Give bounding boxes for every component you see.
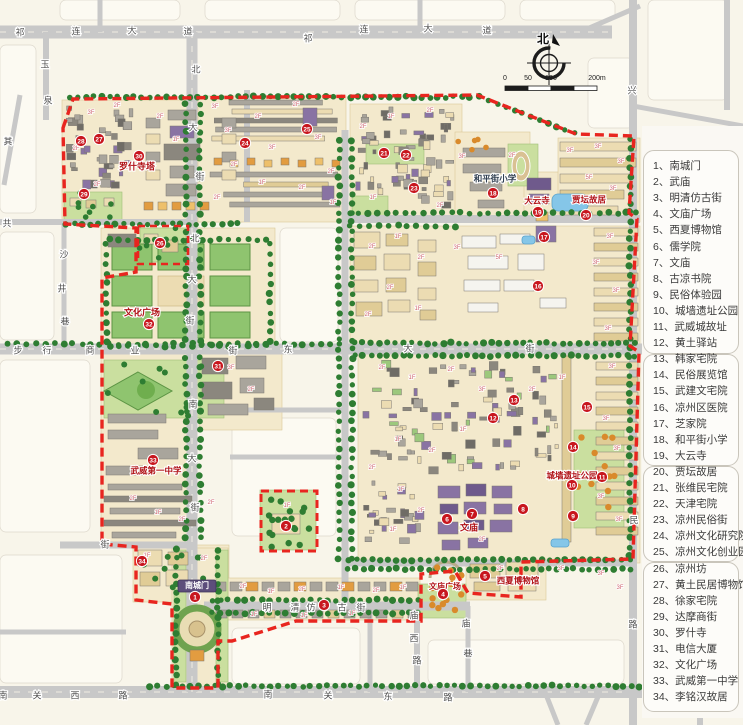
svg-text:大: 大 [188, 121, 197, 132]
svg-text:仿: 仿 [306, 601, 315, 612]
svg-text:街: 街 [525, 342, 534, 353]
svg-text:西夏博物馆: 西夏博物馆 [497, 575, 540, 585]
svg-text:5F: 5F [495, 255, 502, 261]
svg-text:2F: 2F [378, 365, 385, 371]
svg-text:3F: 3F [594, 144, 601, 150]
svg-text:庙: 庙 [461, 617, 470, 628]
legend-item-5: 5、西夏博物馆 [653, 224, 722, 237]
legend-item-6: 6、儒学院 [653, 241, 701, 254]
svg-text:3F: 3F [478, 387, 485, 393]
svg-text:2F: 2F [478, 537, 485, 543]
legend-item-29: 29、达摩商街 [653, 611, 717, 624]
legend-item-24: 24、凉州文化研究院 [653, 530, 743, 543]
marker-7: 7 [466, 508, 477, 519]
svg-text:5F: 5F [585, 175, 592, 181]
marker-11: 11 [596, 471, 607, 482]
svg-text:1F: 1F [387, 114, 394, 120]
legend-item-4: 4、文庙广场 [653, 208, 711, 221]
svg-text:16: 16 [534, 283, 542, 290]
svg-text:1F: 1F [397, 487, 404, 493]
svg-text:2F: 2F [386, 285, 393, 291]
street-west-edge-street: 其 [3, 136, 12, 146]
svg-text:业: 业 [130, 345, 139, 355]
svg-text:1F: 1F [172, 137, 179, 143]
svg-text:关: 关 [32, 689, 41, 700]
marker-14: 14 [567, 441, 578, 452]
svg-text:3F: 3F [597, 571, 604, 577]
svg-text:3F: 3F [608, 364, 615, 370]
svg-text:2F: 2F [327, 169, 334, 175]
legend-item-27: 27、黄土民居博物馆 [653, 579, 743, 592]
legend-item-26: 26、凉州坊 [653, 563, 707, 576]
svg-text:街: 街 [190, 501, 199, 512]
svg-text:2F: 2F [426, 108, 433, 114]
svg-text:8: 8 [521, 506, 525, 513]
svg-text:1F: 1F [558, 375, 565, 381]
svg-text:西: 西 [409, 633, 418, 643]
legend-item-17: 17、芝家院 [653, 418, 707, 431]
svg-text:文化广场: 文化广场 [123, 306, 160, 317]
svg-text:大: 大 [403, 342, 412, 353]
svg-text:大: 大 [187, 452, 196, 463]
marker-16: 16 [532, 280, 543, 291]
legend-item-22: 22、天津宅院 [653, 498, 717, 511]
svg-text:10: 10 [568, 482, 576, 489]
svg-text:民: 民 [629, 515, 638, 525]
marker-25: 25 [301, 123, 312, 134]
svg-text:其: 其 [3, 136, 12, 146]
legend-item-19: 19、大云寺 [653, 450, 707, 463]
svg-text:南: 南 [0, 689, 8, 700]
svg-text:南: 南 [263, 688, 272, 699]
svg-text:2F: 2F [207, 500, 214, 506]
svg-text:2F: 2F [239, 584, 246, 590]
svg-text:兴: 兴 [627, 85, 636, 95]
svg-text:2F: 2F [254, 114, 261, 120]
marker-26: 26 [154, 237, 165, 248]
marker-22: 22 [400, 149, 411, 160]
svg-text:7: 7 [470, 511, 474, 518]
legend-item-12: 12、黄土驿站 [653, 337, 717, 350]
svg-text:2: 2 [284, 523, 288, 530]
marker-23: 23 [408, 182, 419, 193]
svg-text:1F: 1F [283, 503, 290, 509]
svg-text:行: 行 [42, 344, 51, 355]
svg-text:1F: 1F [389, 527, 396, 533]
legend-item-23: 23、凉州民俗街 [653, 514, 728, 527]
svg-text:街: 街 [195, 170, 204, 181]
svg-text:2F: 2F [113, 103, 120, 109]
svg-text:26: 26 [156, 240, 164, 247]
svg-text:2F: 2F [292, 102, 299, 108]
svg-text:玉: 玉 [40, 59, 49, 69]
svg-text:17: 17 [540, 234, 548, 241]
svg-text:道: 道 [482, 24, 491, 35]
marker-10: 10 [566, 479, 577, 490]
svg-text:1F: 1F [399, 585, 406, 591]
svg-text:路: 路 [412, 654, 421, 665]
marker-4: 4 [437, 588, 448, 599]
svg-text:3F: 3F [615, 517, 622, 523]
svg-text:商: 商 [85, 344, 94, 355]
marker-33: 33 [147, 454, 158, 465]
svg-text:1F: 1F [337, 585, 344, 591]
marker-17: 17 [538, 231, 549, 242]
svg-text:1F: 1F [258, 180, 265, 186]
marker-3: 3 [318, 599, 329, 610]
svg-text:井: 井 [57, 282, 66, 293]
svg-text:12: 12 [489, 415, 497, 422]
svg-text:33: 33 [149, 457, 157, 464]
svg-text:3F: 3F [458, 154, 465, 160]
svg-text:3F: 3F [557, 566, 564, 572]
svg-text:18: 18 [489, 190, 497, 197]
legend-item-32: 32、文化广场 [653, 659, 717, 672]
svg-text:3F: 3F [566, 148, 573, 154]
marker-28: 28 [75, 135, 86, 146]
svg-text:明: 明 [262, 602, 271, 612]
svg-text:2F: 2F [156, 114, 163, 120]
street-west-jie: 街 [100, 538, 109, 549]
svg-text:3F: 3F [211, 104, 218, 110]
svg-text:25: 25 [303, 126, 311, 133]
svg-text:0: 0 [503, 75, 507, 82]
street-gong-street: 共 [2, 218, 11, 228]
svg-text:3F: 3F [87, 110, 94, 116]
legend-item-31: 31、电信大厦 [653, 643, 717, 656]
svg-text:2F: 2F [298, 587, 305, 593]
svg-text:路: 路 [443, 691, 452, 702]
svg-text:1F: 1F [369, 195, 376, 201]
marker-1: 1 [189, 591, 200, 602]
legend-item-18: 18、和平街小学 [653, 434, 728, 447]
svg-text:2F: 2F [200, 556, 207, 562]
svg-text:东: 东 [383, 690, 392, 701]
svg-text:南: 南 [188, 398, 197, 409]
svg-text:连: 连 [359, 23, 368, 34]
svg-text:2F: 2F [368, 465, 375, 471]
svg-text:罗什寺塔: 罗什寺塔 [119, 160, 156, 171]
svg-text:祁: 祁 [15, 26, 24, 37]
svg-text:3F: 3F [617, 159, 624, 165]
svg-text:2F: 2F [496, 566, 503, 572]
svg-text:2F: 2F [93, 182, 100, 188]
svg-text:3F: 3F [597, 494, 604, 500]
svg-text:34: 34 [138, 558, 146, 565]
svg-text:大: 大 [423, 22, 432, 33]
svg-text:西: 西 [70, 690, 79, 700]
svg-text:2F: 2F [230, 162, 237, 168]
svg-text:9: 9 [571, 513, 575, 520]
north-label: 北 [537, 31, 549, 46]
svg-text:古: 古 [337, 601, 346, 612]
legend-item-13: 13、韩家宅院 [653, 353, 717, 366]
svg-text:街: 街 [185, 314, 194, 325]
svg-text:50: 50 [524, 75, 532, 82]
legend-item-1: 1、南城门 [653, 160, 701, 173]
svg-text:27: 27 [95, 136, 103, 143]
legend-panel: 1、南城门2、武庙3、明清仿古街4、文庙广场5、西夏博物馆6、儒学院7、文庙8、… [642, 126, 743, 718]
svg-text:3F: 3F [592, 260, 599, 266]
svg-text:2F: 2F [298, 185, 305, 191]
marker-20: 20 [580, 209, 591, 220]
svg-text:东: 东 [283, 343, 292, 354]
svg-text:2F: 2F [436, 203, 443, 209]
svg-text:3F: 3F [602, 416, 609, 422]
svg-text:3F: 3F [616, 585, 623, 591]
legend-item-9: 9、民俗体验园 [653, 289, 722, 302]
svg-text:2F: 2F [213, 195, 220, 201]
svg-text:24: 24 [241, 140, 249, 147]
svg-text:19: 19 [534, 209, 542, 216]
map-canvas: 祁连大道祁连大道北大街北大街南大街东大街步行商业街沙井巷玉泉其共街明清仿古街庙西… [0, 0, 743, 725]
svg-text:2F: 2F [359, 124, 366, 130]
svg-text:2F: 2F [368, 244, 375, 250]
svg-text:3F: 3F [609, 186, 616, 192]
svg-text:祁: 祁 [303, 32, 312, 43]
svg-text:3F: 3F [314, 135, 321, 141]
svg-text:南城门: 南城门 [185, 580, 209, 590]
legend-item-2: 2、武庙 [653, 176, 690, 189]
legend-item-20: 20、贾坛故居 [653, 466, 717, 479]
svg-text:32: 32 [145, 321, 153, 328]
svg-text:武威第一中学: 武威第一中学 [130, 465, 182, 475]
legend-item-28: 28、徐家宅院 [653, 595, 717, 608]
svg-text:1F: 1F [267, 589, 274, 595]
legend-item-10: 10、城墙遗址公园 [653, 305, 738, 318]
svg-text:15: 15 [583, 404, 591, 411]
svg-text:大云寺: 大云寺 [524, 195, 550, 205]
marker-29: 29 [78, 188, 89, 199]
marker-12: 12 [487, 412, 498, 423]
legend-item-30: 30、罗什寺 [653, 627, 707, 640]
svg-text:29: 29 [80, 191, 88, 198]
svg-text:2F: 2F [428, 448, 435, 454]
svg-text:贾坛故居: 贾坛故居 [572, 194, 607, 204]
legend-item-34: 34、李铭汉故居 [653, 691, 728, 704]
svg-text:1F: 1F [154, 510, 161, 516]
svg-text:泉: 泉 [43, 94, 52, 105]
svg-text:3F: 3F [606, 234, 613, 240]
svg-text:200m: 200m [588, 75, 606, 82]
svg-text:沙: 沙 [59, 249, 68, 259]
svg-text:2F: 2F [129, 496, 136, 502]
svg-text:关: 关 [323, 689, 332, 700]
svg-text:1: 1 [193, 594, 197, 601]
legend-item-25: 25、凉州文化创业园 [653, 546, 743, 559]
svg-text:路: 路 [118, 689, 127, 700]
svg-text:1F: 1F [300, 613, 307, 619]
svg-text:2F: 2F [372, 588, 379, 594]
svg-text:100: 100 [545, 75, 557, 82]
svg-text:3F: 3F [613, 446, 620, 452]
legend-item-21: 21、张维民宅院 [653, 482, 728, 495]
svg-text:11: 11 [599, 474, 606, 481]
svg-text:22: 22 [402, 152, 410, 159]
svg-text:巷: 巷 [60, 316, 69, 326]
legend-item-8: 8、古凉书院 [653, 273, 711, 286]
svg-text:2F: 2F [247, 387, 254, 393]
svg-text:6: 6 [445, 516, 449, 523]
svg-text:街: 街 [356, 601, 365, 612]
svg-text:连: 连 [71, 25, 80, 36]
svg-text:巷: 巷 [463, 648, 472, 658]
marker-24: 24 [239, 137, 250, 148]
svg-text:3F: 3F [227, 365, 234, 371]
marker-8: 8 [517, 503, 528, 514]
svg-text:街: 街 [100, 538, 109, 549]
marker-19: 19 [532, 206, 543, 217]
svg-text:20: 20 [582, 212, 590, 219]
marker-34: 34 [136, 555, 147, 566]
svg-text:2F: 2F [417, 508, 424, 514]
legend-item-3: 3、明清仿古街 [653, 192, 722, 205]
marker-30: 30 [133, 150, 144, 161]
marker-9: 9 [567, 510, 578, 521]
svg-text:1F: 1F [329, 200, 336, 206]
marker-6: 6 [441, 513, 452, 524]
marker-27: 27 [93, 133, 104, 144]
svg-text:2F: 2F [417, 255, 424, 261]
svg-text:14: 14 [569, 444, 577, 451]
svg-text:和平街小学: 和平街小学 [474, 173, 517, 183]
svg-text:30: 30 [135, 153, 143, 160]
marker-13: 13 [508, 394, 519, 405]
svg-text:1F: 1F [408, 375, 415, 381]
marker-5: 5 [479, 570, 490, 581]
marker-18: 18 [487, 187, 498, 198]
svg-text:28: 28 [77, 138, 85, 145]
svg-text:5: 5 [483, 573, 487, 580]
svg-text:1F: 1F [394, 234, 401, 240]
svg-text:21: 21 [380, 150, 388, 157]
svg-text:街: 街 [228, 344, 237, 355]
svg-text:道: 道 [183, 25, 192, 36]
svg-text:北: 北 [191, 64, 200, 74]
svg-text:3F: 3F [224, 128, 231, 134]
svg-text:2F: 2F [447, 367, 454, 373]
svg-text:城墙遗址公园: 城墙遗址公园 [546, 470, 597, 480]
svg-text:3: 3 [322, 602, 326, 609]
svg-text:2F: 2F [72, 146, 79, 152]
svg-text:13: 13 [510, 397, 518, 404]
marker-15: 15 [581, 401, 592, 412]
legend-item-16: 16、凉州区医院 [653, 402, 728, 415]
svg-text:共: 共 [2, 218, 11, 228]
legend-item-11: 11、武威城故址 [653, 321, 727, 334]
svg-text:1F: 1F [414, 306, 421, 312]
svg-text:31: 31 [214, 363, 222, 370]
svg-text:1F: 1F [250, 612, 257, 618]
svg-text:2F: 2F [508, 153, 515, 159]
svg-text:1F: 1F [348, 611, 355, 617]
svg-text:3F: 3F [604, 326, 611, 332]
marker-2: 2 [280, 520, 291, 531]
legend-item-7: 7、文庙 [653, 257, 690, 270]
svg-text:3F: 3F [612, 288, 619, 294]
svg-text:北: 北 [190, 233, 199, 243]
svg-text:大: 大 [127, 24, 136, 35]
svg-text:2F: 2F [364, 312, 371, 318]
urban-plan-map-page: 祁连大道祁连大道北大街北大街南大街东大街步行商业街沙井巷玉泉其共街明清仿古街庙西… [0, 0, 743, 725]
legend-item-33: 33、武威第一中学 [653, 675, 738, 688]
svg-text:文庙: 文庙 [459, 521, 478, 532]
svg-text:1F: 1F [394, 437, 401, 443]
svg-text:路: 路 [628, 618, 637, 629]
svg-text:1F: 1F [459, 427, 466, 433]
svg-text:清: 清 [290, 601, 299, 612]
svg-text:大: 大 [187, 273, 196, 284]
svg-text:2F: 2F [528, 387, 535, 393]
svg-text:23: 23 [410, 185, 418, 192]
marker-31: 31 [212, 360, 223, 371]
marker-21: 21 [378, 147, 389, 158]
svg-text:4: 4 [441, 591, 445, 598]
svg-text:步: 步 [13, 345, 22, 355]
svg-text:2F: 2F [178, 517, 185, 523]
svg-text:3F: 3F [453, 245, 460, 251]
legend-item-14: 14、民俗展览馆 [653, 369, 728, 382]
svg-text:3F: 3F [268, 145, 275, 151]
legend-item-15: 15、武建文宅院 [653, 385, 728, 398]
svg-text:庙: 庙 [409, 609, 418, 620]
marker-32: 32 [143, 318, 154, 329]
